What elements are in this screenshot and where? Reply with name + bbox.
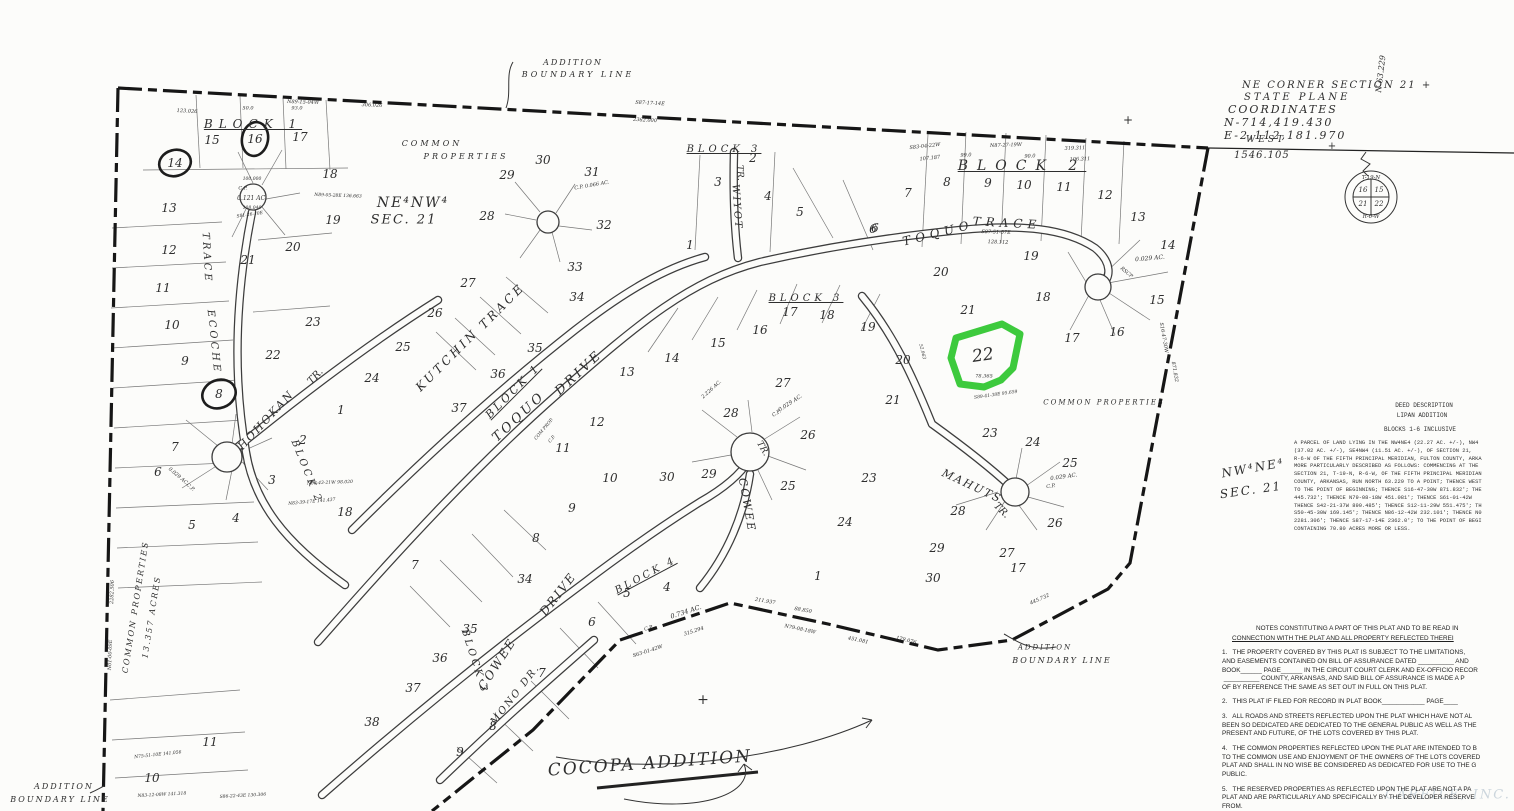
map-label: C.P. (185, 483, 195, 493)
map-label: 25 (780, 480, 795, 492)
bearing: 2282.506 (110, 580, 116, 604)
map-label: 12 (1097, 189, 1112, 201)
map-label: 100.000 (243, 178, 262, 183)
street-mahuts-tr: TR. (991, 501, 1010, 520)
deed-blocks: BLOCKS 1-6 INCLUSIVE (1384, 427, 1456, 433)
map-label: 13 (1130, 211, 1145, 223)
note-item: 2. THIS PLAT IF FILED FOR RECORD IN PLAT… (1222, 698, 1514, 707)
bearing: 106.311 (1070, 157, 1091, 163)
deed-line: R-6-W OF THE FIFTH PRINCIPAL MERIDIAN, F… (1294, 456, 1514, 464)
bearing: N88-43-21W 98.020 (307, 481, 353, 487)
bearing: N83-12-08W 141.318 (138, 792, 187, 799)
map-label: 24 (364, 372, 379, 384)
bearing: 107.187 (919, 155, 940, 162)
notes-items: 1. THE PROPERTY COVERED BY THIS PLAT IS … (1222, 649, 1514, 811)
map-label: 10 (1016, 179, 1031, 191)
block-1-label: BLOCK 1 (204, 118, 302, 130)
deed-line: CONTAINING 70.80 ACRES MORE OR LESS. (1294, 526, 1514, 534)
map-label: 7 (904, 187, 912, 199)
map-label: 33 (567, 261, 582, 273)
quarter-section-label: SEC. 21 (1219, 480, 1283, 501)
map-label: 34 (517, 573, 532, 585)
map-label: 10 (164, 319, 179, 331)
lot-22-area: 78.365 (975, 375, 993, 380)
bearing: S63-01-42W (632, 645, 663, 659)
map-label: 7 (411, 559, 419, 571)
common-properties-label: COMMON PROPERTIES (1043, 400, 1165, 407)
deed-line: MORE PARTICULARLY DESCRIBED AS FOLLOWS: … (1294, 463, 1514, 471)
west-distance: 1546.105 (1234, 150, 1290, 161)
survey-cross: + (1328, 142, 1336, 152)
bearing: 93.0 (291, 107, 302, 112)
map-label: 36 (432, 652, 447, 664)
map-label: 27 (460, 277, 475, 289)
deed-line: 2281.306'; THENCE S87-17-14E 2362.0'; TO… (1294, 518, 1514, 526)
street-toquo-trace: TOQUO (901, 218, 974, 247)
street-cowee-drive: COWEE (476, 636, 518, 692)
street-toquo-drive: DRIVE (553, 348, 605, 398)
deed-line: THENCE S42-21-37W 890.485'; THENCE S12-1… (1294, 503, 1514, 511)
note-item: 4. THE COMMON PROPERTIES REFLECTED UPON … (1222, 745, 1514, 780)
bearing: 50.0 (242, 107, 253, 112)
map-label: 13 (619, 366, 634, 378)
map-label: 6 (588, 616, 596, 628)
addition-boundary-label: ADDITION (543, 59, 603, 67)
map-label: 24 (837, 516, 852, 528)
bearing: 90.0 (1024, 154, 1035, 159)
cocopa-addition-label: COCOPA ADDITION (547, 748, 752, 779)
map-label: 0.734 AC. (670, 604, 703, 620)
map-label: 35 (527, 342, 542, 354)
map-label: 27 (775, 377, 790, 389)
bearing: 306.026 (362, 103, 383, 109)
deed-subtitle: LIPAN ADDITION (1397, 413, 1447, 419)
deed-line: S50-45-30W 169.145'; THENCE N86-12-42W 2… (1294, 510, 1514, 518)
bearing: S81-26-10E (237, 212, 264, 220)
section-21: 21 (1359, 200, 1368, 208)
map-label: 14 (664, 352, 679, 364)
map-label: C.P. (238, 187, 247, 192)
map-label: 24 (1025, 436, 1040, 448)
map-label: 34 (569, 291, 584, 303)
plat-notes: NOTES CONSTITUTING A PART OF THIS PLAT A… (1222, 625, 1514, 811)
map-label: 36 (490, 368, 505, 380)
coordinates-label: COORDINATES (1228, 103, 1338, 116)
map-label: 17 (1064, 332, 1079, 344)
map-label: 15 (204, 134, 219, 146)
map-label: 32 (596, 219, 611, 231)
bearing: S87-17-14E (635, 101, 665, 108)
map-label: 23 (305, 316, 320, 328)
street-kutchin-trace: TRACE (477, 281, 527, 331)
map-label: 12 (161, 244, 176, 256)
map-label: 18 (337, 506, 352, 518)
plat-map-page: 1516171418131912202111109222387654321182… (0, 0, 1514, 811)
map-label: 17 (782, 306, 797, 318)
bearing: 451.081 (847, 636, 868, 645)
map-label: 11 (202, 736, 217, 748)
street-cowee-tr: TR. (754, 440, 770, 458)
bearing: 179.076 (895, 636, 916, 646)
map-label: 25 (395, 341, 410, 353)
map-label: 16 (247, 133, 262, 145)
state-plane-label: STATE PLANE (1244, 92, 1350, 103)
map-label: 28 (723, 407, 738, 419)
map-label: 26 (427, 307, 442, 319)
street-wiyot-tr: TR. (734, 165, 744, 181)
bearing: 2362.000 (633, 118, 657, 124)
bearing: 319.311 (1065, 146, 1086, 152)
map-label: 23 (982, 427, 997, 439)
map-label: 11 (555, 442, 570, 454)
map-label: 30 (925, 572, 940, 584)
quarter-section-label: NW⁴NE⁴ (1221, 457, 1286, 480)
map-label: 19 (1023, 250, 1038, 262)
street-cowee-tr: COWEE (737, 477, 757, 533)
map-label: 1 (337, 404, 345, 416)
map-label: 5 (188, 519, 196, 531)
map-label: 21 (240, 254, 255, 266)
bearing: 871.832 (1170, 361, 1179, 382)
note-item: 3. ALL ROADS AND STREETS REFLECTED UPON … (1222, 713, 1514, 739)
map-label: 29 (701, 468, 716, 480)
map-label: 14 (167, 157, 182, 169)
map-label: 0.121 AC. (237, 196, 267, 202)
street-mahuts-tr: MAHUTS (940, 467, 1004, 504)
survey-cross: + (1123, 114, 1133, 126)
map-label: 20 (895, 354, 910, 366)
bearing: N79-08-18W (784, 624, 816, 636)
map-label: 18 (819, 309, 834, 321)
bearing: N87-27-19W (990, 143, 1022, 149)
map-label: 11 (1056, 181, 1071, 193)
bearing: N75-51-10E 141.056 (134, 751, 182, 760)
block-2-label: BLOCK 2 (289, 439, 324, 506)
map-label: 9 (568, 502, 576, 514)
township-label: T-19-N (1362, 175, 1381, 181)
bearing: S83-04-22W (909, 143, 940, 151)
map-label: 6 (154, 466, 162, 478)
map-label: C.P. (772, 409, 782, 418)
map-label: 4 (232, 512, 240, 524)
map-label: 5 (796, 206, 804, 218)
note-item: 1. THE PROPERTY COVERED BY THIS PLAT IS … (1222, 649, 1514, 692)
deed-line: COUNTY, ARKANSAS, RUN NORTH 63.229 TO A … (1294, 479, 1514, 487)
map-label: 10 (144, 772, 159, 784)
addition-boundary-label: BOUNDARY LINE (10, 796, 109, 804)
block-3-label: BLOCK 3 (687, 145, 762, 155)
bearing: S86-22-43E 130.306 (220, 794, 267, 801)
map-label: 9 (984, 177, 992, 189)
survey-cross: + (697, 693, 709, 707)
addition-boundary-label: BOUNDARY LINE (1012, 657, 1111, 665)
map-label: 9 (456, 746, 464, 758)
map-label: RSCP (1119, 266, 1133, 279)
map-label: 0.029 AC. (1050, 473, 1078, 482)
street-ecoche-trace: ECOCHE (205, 309, 222, 375)
map-label: 20 (285, 241, 300, 253)
notes-title-line1: NOTES CONSTITUTING A PART OF THIS PLAT A… (1256, 625, 1514, 634)
bearing: 99.0 (960, 153, 971, 158)
addition-boundary-label: ADDITION (1018, 645, 1072, 652)
map-label: 19 (325, 214, 340, 226)
quarter-section-label: NE⁴NW⁴ (377, 196, 449, 210)
map-label: 4 (663, 581, 671, 593)
street-ecoche-trace: TRACE (200, 232, 213, 284)
street-kutchin-trace: KUTCHIN (414, 327, 481, 394)
map-label: 26 (1047, 517, 1062, 529)
map-label: 8 (943, 176, 951, 188)
map-label: 25 (1062, 457, 1077, 469)
section-22: 22 (1375, 200, 1384, 208)
common-properties-label: COMMON (402, 140, 463, 148)
quarter-section-label: SEC. 21 (371, 214, 438, 227)
map-label: 7 (171, 441, 179, 453)
map-label: 37 (451, 402, 466, 414)
map-label: 38 (364, 716, 379, 728)
map-label: 8 (532, 532, 540, 544)
common-properties-label: PROPERTIES (424, 153, 509, 161)
block-2-label: BLOCK 2 (958, 159, 1087, 173)
bearing: N89-05-28E 136.663 (314, 194, 362, 200)
deed-line: SECTION 21, T-19-N, R-6-W, OF THE FIFTH … (1294, 471, 1514, 479)
bearing: N83-39-17E 141.437 (288, 499, 336, 508)
map-label: 9 (181, 355, 189, 367)
deed-line: 445.732'; THENCE N79-08-18W 451.081'; TH… (1294, 495, 1514, 503)
bearing: 52.963 (917, 344, 925, 360)
map-label: 37 (405, 682, 420, 694)
ne-corner-title: NE CORNER SECTION 21 + (1242, 80, 1432, 91)
map-label: 26 (800, 429, 815, 441)
deed-title: DEED DESCRIPTION (1395, 403, 1453, 409)
bearing: N01-00-09E (108, 640, 114, 671)
street-wiyot-tr: WIYOT (729, 184, 742, 230)
map-label: 8 (215, 388, 223, 400)
map-label: 30 (535, 154, 550, 166)
map-label: 2.226 AC. (701, 380, 723, 400)
map-label: 10 (602, 472, 617, 484)
map-label: 15 (710, 337, 725, 349)
map-label: 29 (499, 169, 514, 181)
map-label: 14 (1160, 239, 1175, 251)
map-label: 19 (860, 321, 875, 333)
map-label: 17 (1010, 562, 1025, 574)
map-label: C.P. (644, 625, 654, 633)
map-label: 13 (161, 202, 176, 214)
map-label: 27 (999, 547, 1014, 559)
map-label: 29 (929, 542, 944, 554)
map-label: 31 (584, 166, 599, 178)
note-item: 5. THE RESERVED PROPERTIES AS REFLECTED … (1222, 786, 1514, 811)
addition-boundary-label: BOUNDARY LINE (522, 71, 634, 79)
map-label: 20 (933, 266, 948, 278)
map-label: 11 (155, 282, 170, 294)
bearing: 123.026 (177, 109, 198, 115)
street-hohokan-tr: HOHOKAN (236, 388, 296, 451)
street-hohokan-tr: TR. (306, 367, 325, 387)
map-label: 1 (814, 570, 822, 582)
map-label: 0.029 AC. (1135, 255, 1165, 264)
deed-description-body: A PARCEL OF LAND LYING IN THE NW4NE4 (22… (1294, 440, 1514, 534)
section-16: 16 (1359, 186, 1368, 194)
lot-22-number: 22 (971, 346, 995, 366)
deed-line: (37.02 AC. +/-), SE4NW4 (11.51 AC. +/-),… (1294, 448, 1514, 456)
map-label: 28 (950, 505, 965, 517)
bearing: 211.937 (754, 598, 775, 607)
map-label: 28 (479, 210, 494, 222)
bearing: S16-47-30W (1158, 322, 1168, 353)
bearing: 128.112 (988, 240, 1009, 246)
bearing: 445.732 (1030, 594, 1051, 607)
range-label: R-6-W (1363, 214, 1380, 220)
map-label: 16 (752, 324, 767, 336)
west-label: WEST (1246, 135, 1286, 145)
addition-boundary-label: ADDITION (34, 783, 94, 791)
map-label: 3 (268, 474, 276, 486)
map-label: 30 (659, 471, 674, 483)
map-label: 12 (589, 416, 604, 428)
bearing: S87-51-57E (981, 230, 1011, 236)
street-cowee-drive: DRIVE (538, 570, 579, 617)
block-3-label: BLOCK 3 (769, 294, 844, 304)
map-label: 16 (1109, 326, 1124, 338)
common-properties-acres: 13.357 ACRES (141, 575, 162, 659)
coordinate-north: N-714,419.430 (1224, 116, 1333, 129)
bearing: S89-41-38E 95.659 (974, 391, 1018, 402)
map-label: 0.029 AC. (778, 394, 804, 413)
map-label: C.P. 0.066 AC. (574, 180, 610, 191)
map-label: 4 (764, 190, 772, 202)
map-label: C.P. (1046, 484, 1056, 490)
section-15: 15 (1375, 186, 1384, 194)
deed-line: TO THE POINT OF BEGINNING; THENCE S16-47… (1294, 487, 1514, 495)
bearing: 88.850 (794, 607, 812, 615)
map-label: 3 (714, 176, 722, 188)
map-label: 18 (1035, 291, 1050, 303)
map-label: 17 (292, 131, 307, 143)
map-label: 18 (322, 168, 337, 180)
map-label: 23 (861, 472, 876, 484)
map-label: 21 (885, 394, 900, 406)
notes-title-line2: CONNECTION WITH THE PLAT AND ALL PROPERT… (1232, 635, 1514, 644)
map-label: 15 (1149, 294, 1164, 306)
map-label: 22 (265, 349, 280, 361)
map-label: 6 (869, 223, 877, 235)
bearing: 315.294 (683, 626, 704, 637)
map-label: 1 (686, 239, 694, 251)
map-label: 21 (960, 304, 975, 316)
deed-line: A PARCEL OF LAND LYING IN THE NW4NE4 (22… (1294, 440, 1514, 448)
